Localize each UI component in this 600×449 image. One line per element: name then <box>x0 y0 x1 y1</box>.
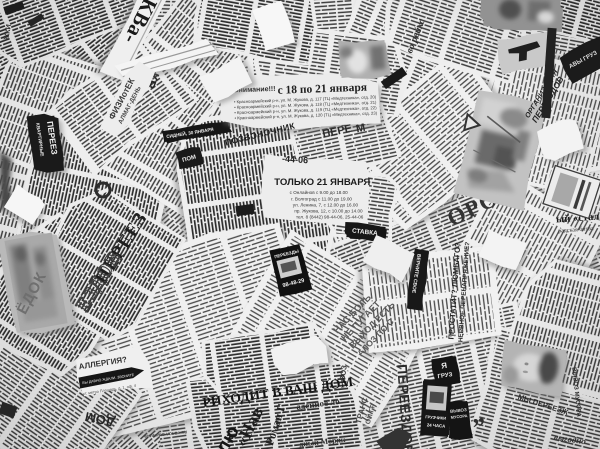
svg-text:с Онлайнов с 9.00 до 18.00: с Онлайнов с 9.00 до 18.00 <box>290 189 349 195</box>
svg-text:ТОЛЬКО 21 ЯНВАРЯ: ТОЛЬКО 21 ЯНВАРЯ <box>274 177 370 188</box>
svg-text:г. Волгоград с 11.00 до 19.00: г. Волгоград с 11.00 до 19.00 <box>291 196 352 201</box>
svg-text:-44-06: -44-06 <box>282 154 309 166</box>
svg-text:тел. 8 (8442) 98-44-06, 25-44-: тел. 8 (8442) 98-44-06, 25-44-06 <box>296 215 364 220</box>
svg-text:ул. Ленина, 7, с 12.00 до 16.0: ул. Ленина, 7, с 12.00 до 16.00 <box>293 202 359 207</box>
svg-text:пр. Жукова, 12, с 10.00 до 14.: пр. Жукова, 12, с 10.00 до 14.00 <box>294 209 363 214</box>
